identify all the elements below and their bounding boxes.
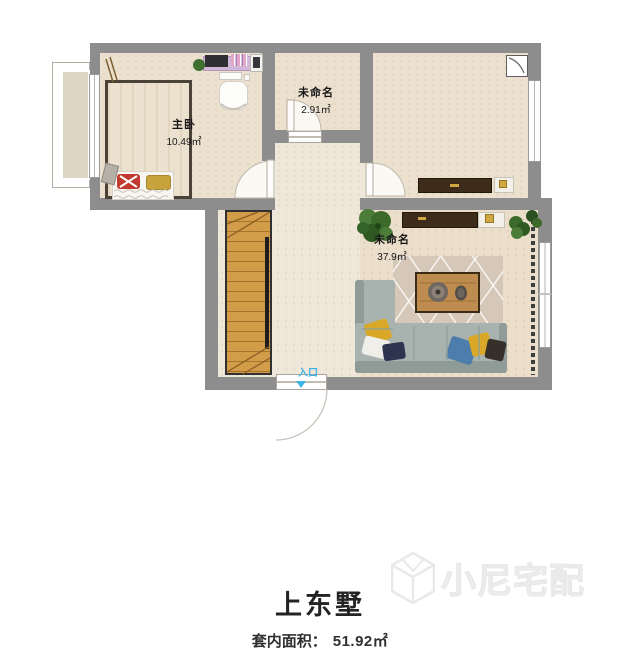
curtain (531, 213, 535, 375)
room-area-living: 37.9㎡ (362, 248, 422, 263)
area-label: 套内面积： (252, 633, 327, 650)
bay-window-panel (61, 70, 90, 180)
door-sill-small-room (288, 131, 322, 143)
tv-cabinet (402, 212, 478, 228)
tv-cabinet-handle (418, 217, 426, 220)
window-living-room (539, 242, 551, 348)
plan-area-caption: 套内面积：51.92㎡ (0, 630, 640, 651)
office-chair (219, 81, 248, 110)
entrance-label: 入口 (292, 364, 324, 379)
floor-hall-upper (275, 143, 373, 210)
wall-bottom (205, 377, 552, 390)
cushion-navy (382, 342, 406, 362)
coffee-table (415, 272, 480, 313)
corner-window-icon (506, 55, 528, 77)
wall-bedroom-hall-divider (262, 53, 275, 161)
entrance-arrow-icon (296, 381, 306, 388)
pillow-gold (146, 175, 171, 190)
book-stack (231, 54, 248, 66)
mouse (244, 74, 250, 81)
gold-box-topright (499, 180, 507, 188)
entrance-door-arc (276, 389, 327, 440)
window-bedroom-left (89, 74, 100, 178)
cushion-dark (484, 338, 507, 362)
window-topright-room (528, 80, 541, 162)
floorplan-page: 主卧 10.49㎡ 未命名 2.91㎡ 未命名 37.9㎡ 入口 小尼宅配 上东… (0, 0, 640, 662)
wall-left-lower (205, 198, 218, 390)
monitor (205, 55, 228, 67)
wall-living-top (360, 198, 552, 210)
sideboard-handle (450, 184, 459, 187)
stair-rail (265, 237, 269, 349)
pillow-flag (117, 174, 140, 189)
room-name-small: 未命名 (286, 84, 346, 100)
room-name-master: 主卧 (154, 116, 214, 132)
room-name-living: 未命名 (362, 231, 422, 247)
gold-box-living (485, 214, 494, 223)
pc-tower-front (253, 57, 260, 68)
wall-hall-topright-divider (360, 53, 373, 163)
sofa-backrest (355, 361, 507, 373)
area-value: 51.92㎡ (333, 633, 389, 650)
room-label-living: 未命名 37.9㎡ (362, 231, 422, 263)
room-label-master: 主卧 10.49㎡ (154, 116, 214, 148)
keyboard (219, 72, 242, 80)
wall-top (90, 43, 541, 53)
room-area-master: 10.49㎡ (154, 133, 214, 148)
window-living-divider (539, 293, 551, 295)
room-label-small: 未命名 2.91㎡ (286, 84, 346, 116)
plan-title: 上东墅 (0, 583, 640, 622)
room-area-small: 2.91㎡ (286, 101, 346, 116)
